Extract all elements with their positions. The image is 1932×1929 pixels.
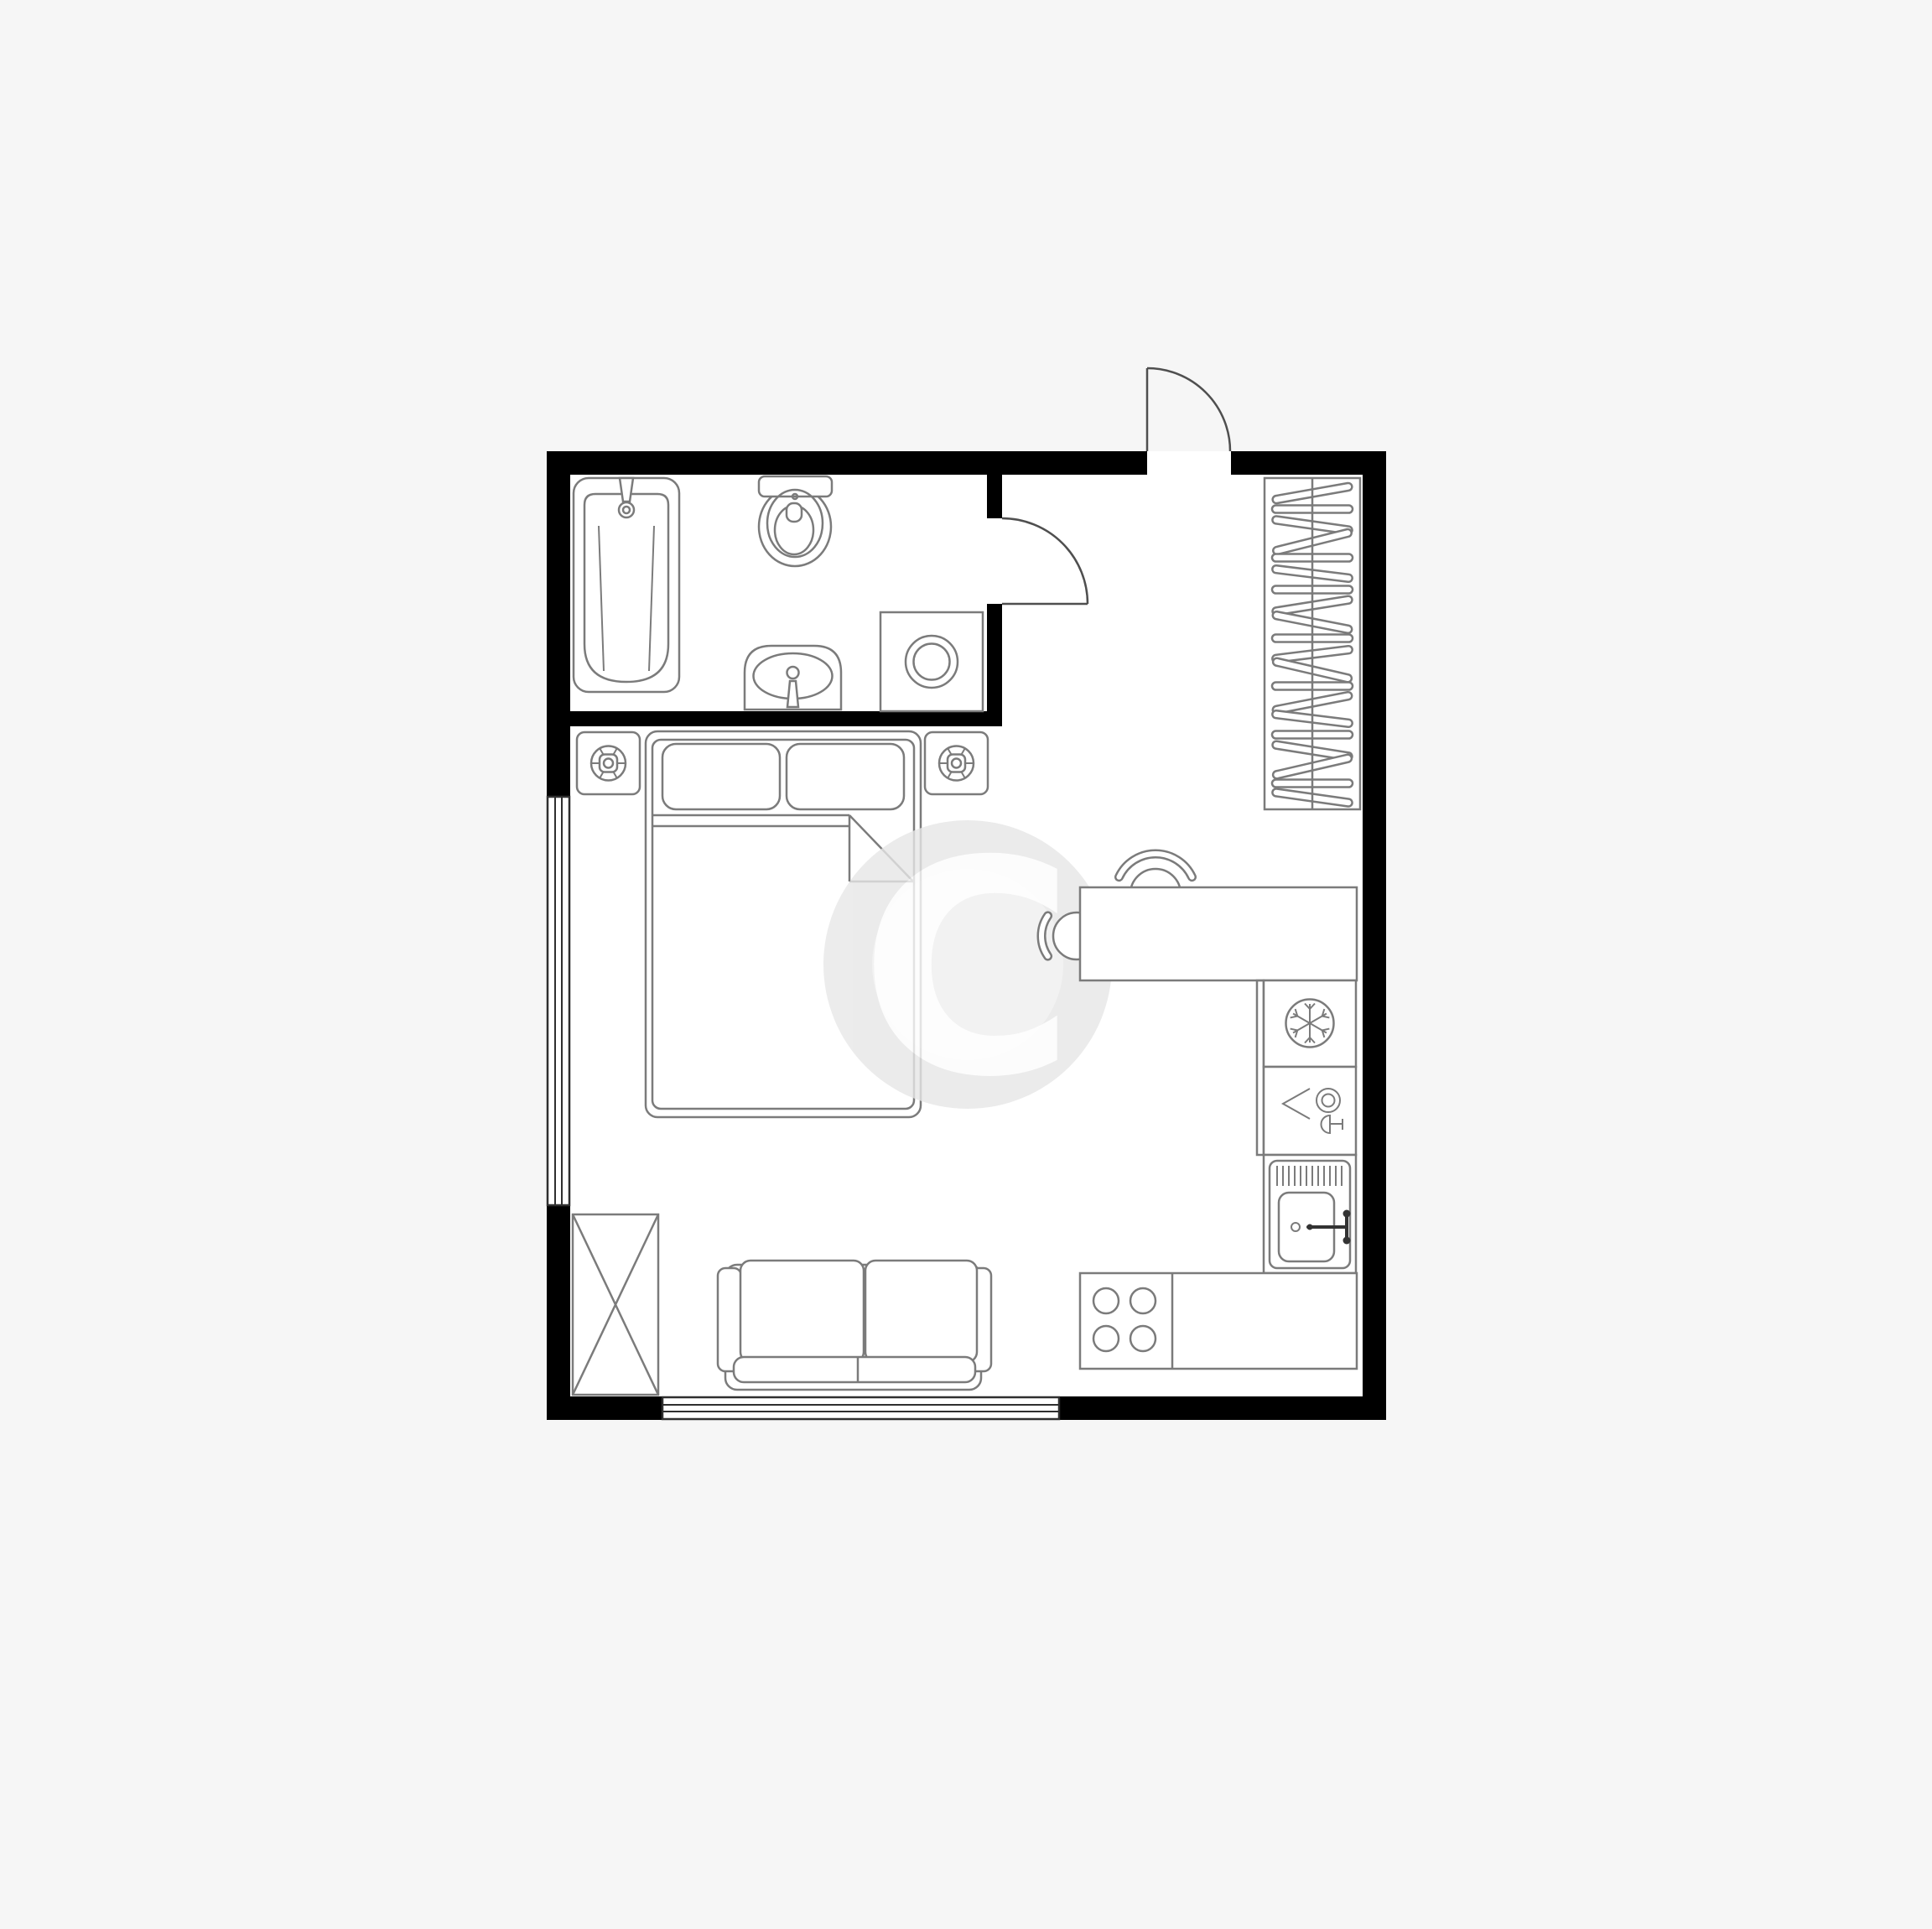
floor-plan-drawing: C bbox=[0, 0, 1932, 1929]
storage-wardrobe-crossed bbox=[573, 1214, 658, 1395]
sofa-armrest-left bbox=[718, 1268, 741, 1371]
watermark-letter: C bbox=[860, 798, 1076, 1142]
hanger-wardrobe bbox=[1265, 478, 1360, 809]
window-left bbox=[548, 797, 569, 1205]
nightstand-right bbox=[925, 732, 988, 794]
refrigerator bbox=[1264, 980, 1356, 1067]
washbasin bbox=[745, 646, 841, 710]
bathtub bbox=[574, 478, 679, 692]
sofa-backrest bbox=[734, 1357, 975, 1382]
desk bbox=[1080, 887, 1357, 980]
washing-machine bbox=[880, 612, 983, 711]
sofa bbox=[718, 1261, 991, 1390]
floor-plan-page: C bbox=[0, 0, 1932, 1929]
kitchen-sink bbox=[1264, 1155, 1356, 1273]
sofa-cushion-right bbox=[865, 1261, 977, 1362]
watermark: C bbox=[823, 798, 1112, 1142]
kitchen-counter bbox=[1080, 1273, 1357, 1369]
window-bottom bbox=[662, 1397, 1059, 1419]
nightstand-left bbox=[577, 732, 640, 794]
pillow-left bbox=[662, 744, 780, 809]
basin-faucet-icon bbox=[787, 667, 799, 679]
sofa-cushion-left bbox=[740, 1261, 864, 1362]
toilet bbox=[759, 476, 832, 566]
dishwasher bbox=[1264, 1067, 1356, 1155]
